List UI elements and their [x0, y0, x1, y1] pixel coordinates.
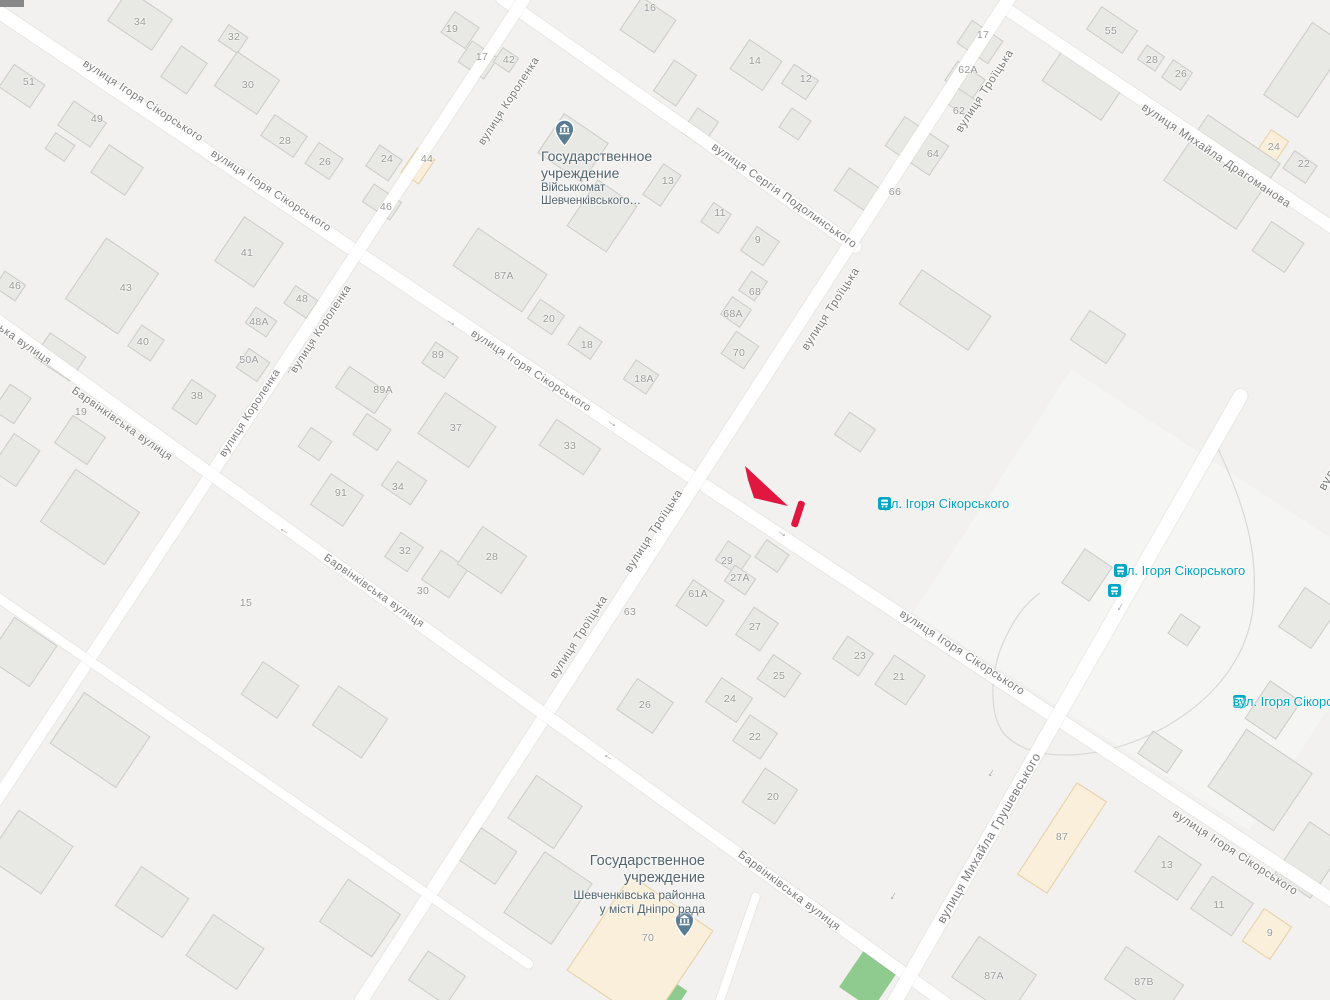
building-footprint	[675, 579, 724, 627]
building-number-label: 30	[242, 79, 254, 91]
building-number-label: 18A	[634, 373, 654, 385]
one-way-arrow-icon: →	[985, 766, 1001, 782]
poi-text-line: у місті Дніпро рада	[475, 902, 705, 916]
building-number-label: 89A	[373, 384, 393, 396]
building-number-label: 12	[800, 73, 812, 85]
one-way-arrow-icon: →	[887, 889, 903, 905]
building-number-label: 11	[1213, 899, 1225, 911]
building-number-label: 68A	[723, 308, 743, 320]
building-number-label: 38	[191, 390, 203, 402]
building-number-label: 46	[9, 280, 21, 292]
map-edge-artifact	[0, 0, 24, 7]
building-number-label: 66	[889, 186, 901, 198]
transit-stop-icon	[1114, 564, 1127, 577]
building-footprint	[241, 661, 300, 719]
civic-poi-label[interactable]: ГосударственноеучреждениеШевченківська р…	[475, 853, 705, 917]
building-number-label: 87A	[984, 970, 1004, 982]
building-number-label: 42	[503, 54, 515, 66]
building-number-label: 70	[642, 932, 654, 944]
building-number-label: 37	[450, 422, 462, 434]
transit-stop-name[interactable]: вул. Ігоря Сікорського	[1233, 695, 1330, 708]
building-number-label: 43	[120, 282, 132, 294]
building-number-label: 24	[381, 153, 393, 165]
building-footprint	[778, 107, 811, 140]
building-number-label: 64	[927, 148, 939, 160]
building-footprint	[0, 383, 32, 424]
transit-stop-name[interactable]: вул. Ігоря Сікорського	[878, 497, 1009, 510]
civic-poi-pin-icon	[554, 119, 575, 147]
civic-poi-pin[interactable]	[554, 119, 575, 147]
building-number-label: 48A	[249, 316, 269, 328]
building-number-label: 49	[91, 113, 103, 125]
building-number-label: 51	[23, 76, 35, 88]
building-footprint	[40, 469, 140, 566]
building-number-label: 26	[639, 699, 651, 711]
building-number-label: 48	[296, 293, 308, 305]
building-footprint	[298, 427, 333, 461]
building-footprint	[1070, 310, 1127, 364]
building-number-label: 91	[335, 487, 347, 499]
building-number-label: 87	[1056, 831, 1068, 843]
street-name-label: вулиця Михайла Грушевського	[1315, 317, 1330, 492]
building-number-label: 9	[755, 234, 761, 246]
building-number-label: 28	[279, 135, 291, 147]
building-number-label: 46	[380, 201, 392, 213]
building-footprint	[310, 473, 364, 527]
building-number-label: 26	[1175, 68, 1187, 80]
building-footprint	[185, 914, 264, 990]
poi-text-line: Шевченківська районна	[475, 888, 705, 902]
poi-text-line: Государственное	[475, 853, 705, 870]
building-number-label: 41	[241, 247, 253, 259]
street-name-label: вулиця Троїцька	[623, 487, 685, 574]
street-road	[714, 892, 761, 1000]
building-number-label: 70	[733, 347, 745, 359]
building-footprint	[898, 269, 991, 351]
transit-stop-icon	[1108, 584, 1121, 597]
building-footprint	[834, 411, 876, 452]
building-number-label: 44	[421, 153, 433, 165]
building-number-label: 33	[564, 440, 576, 452]
building-number-label: 25	[773, 670, 785, 682]
building-number-label: 14	[749, 55, 761, 67]
poi-text-line: Государственное	[541, 148, 771, 165]
building-footprint	[653, 59, 697, 106]
building-number-label: 21	[893, 671, 905, 683]
building-footprint	[115, 866, 190, 938]
building-number-label: 28	[1146, 54, 1158, 66]
building-number-label: 29	[721, 555, 733, 567]
building-footprint	[160, 45, 208, 94]
building-number-label: 50A	[239, 354, 259, 366]
building-number-label: 15	[240, 597, 252, 609]
building-number-label: 27	[749, 621, 761, 633]
building-footprint	[65, 237, 159, 334]
building-footprint	[54, 415, 106, 466]
building-number-label: 62	[953, 105, 965, 117]
building-footprint	[507, 775, 583, 849]
building-number-label: 17	[476, 51, 488, 63]
building-number-label: 32	[399, 545, 411, 557]
building-number-label: 27A	[730, 572, 750, 584]
building-footprint	[352, 413, 391, 451]
poi-text-line: учреждение	[541, 165, 771, 182]
building-number-label: 61A	[688, 588, 708, 600]
building-number-label: 13	[1161, 859, 1173, 871]
building-number-label: 32	[228, 31, 240, 43]
building-number-label: 20	[543, 313, 555, 325]
building-number-label: 19	[446, 23, 458, 35]
building-number-label: 30	[417, 585, 429, 597]
building-footprint	[1263, 22, 1330, 118]
building-number-label: 68	[749, 286, 761, 298]
building-number-label: 40	[137, 336, 149, 348]
building-footprint	[951, 936, 1037, 1000]
transit-stop-icon	[878, 497, 891, 510]
map-canvas[interactable]: →→→→→→→→→вулиця Ігоря Сікорськоговулиця …	[0, 0, 1330, 1000]
building-number-label: 34	[134, 16, 146, 28]
building-footprint	[0, 433, 41, 487]
building-number-label: 87B	[1134, 976, 1154, 988]
building-number-label: 18	[581, 339, 593, 351]
building-number-label: 22	[1298, 158, 1310, 170]
building-number-label: 23	[854, 650, 866, 662]
transit-stop-name[interactable]: вул. Ігоря Сікорського	[1114, 564, 1245, 577]
building-footprint	[740, 226, 780, 267]
building-number-label: 28	[486, 551, 498, 563]
building-number-label: 24	[724, 693, 736, 705]
street-name-label: вулиця Короленка	[217, 367, 283, 460]
poi-text-line: Військкомат	[541, 182, 771, 196]
building-number-label: 19	[75, 406, 87, 418]
poi-text-line: учреждение	[475, 870, 705, 887]
building-footprint	[1251, 221, 1304, 273]
building-number-label: 89	[432, 349, 444, 361]
building-footprint	[312, 685, 389, 758]
building-footprint	[171, 379, 216, 426]
building-number-label: 24	[1268, 141, 1280, 153]
building-number-label: 62A	[958, 64, 978, 76]
building-footprint	[44, 132, 75, 162]
building-number-label: 16	[644, 2, 656, 14]
poi-text-line: Шевченківського…	[541, 195, 771, 209]
building-number-label: 22	[749, 731, 761, 743]
building-number-label: 55	[1105, 25, 1117, 37]
building-number-label: 63	[624, 606, 636, 618]
building-footprint	[1104, 946, 1184, 1000]
building-footprint	[90, 144, 144, 196]
civic-poi-label[interactable]: ГосударственноеучреждениеВійськкоматШевч…	[541, 148, 771, 209]
building-number-label: 9	[1267, 927, 1273, 939]
building-footprint	[0, 810, 74, 895]
building-number-label: 87A	[494, 270, 514, 282]
building-number-label: 26	[319, 156, 331, 168]
building-number-label: 20	[767, 791, 779, 803]
building-number-label: 17	[977, 29, 989, 41]
building-number-label: 34	[392, 481, 404, 493]
building-footprint	[408, 950, 466, 1000]
